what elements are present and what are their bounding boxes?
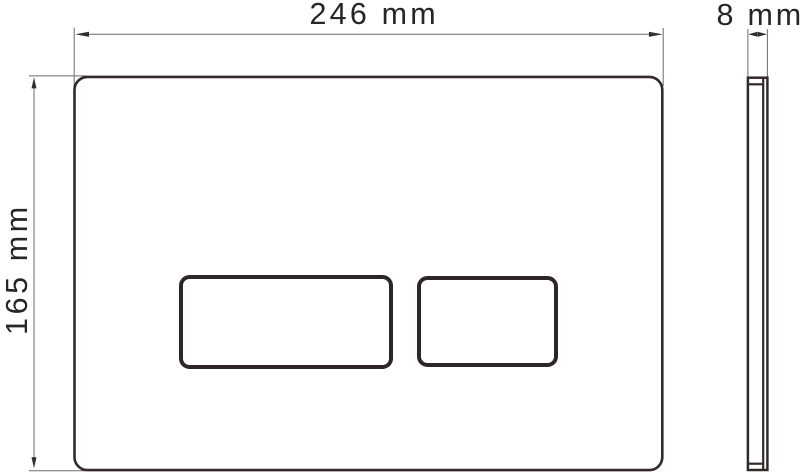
svg-text:246 mm: 246 mm (310, 0, 439, 31)
svg-text:8 mm: 8 mm (717, 0, 800, 32)
svg-text:165 mm: 165 mm (0, 203, 34, 335)
